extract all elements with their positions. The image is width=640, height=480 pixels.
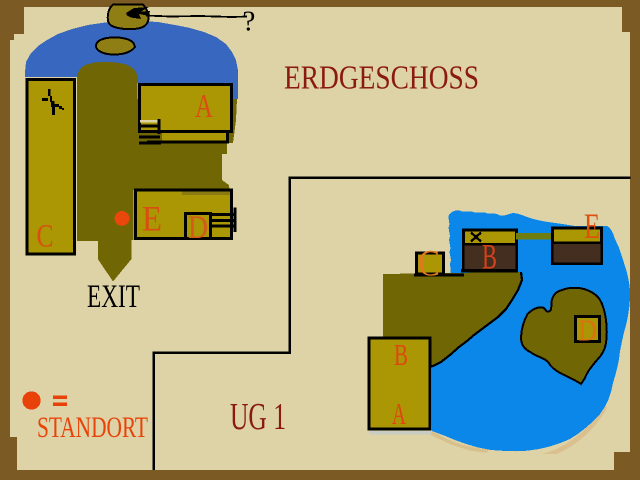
svg-text:E: E — [142, 199, 162, 239]
svg-text:E: E — [584, 206, 600, 246]
svg-text:?: ? — [243, 6, 256, 38]
svg-text:C: C — [37, 219, 54, 255]
svg-text:B: B — [482, 237, 497, 277]
svg-text:A: A — [195, 88, 213, 125]
svg-text:STANDORT: STANDORT — [37, 411, 148, 444]
svg-text:D: D — [578, 313, 597, 348]
svg-text:ERDGESCHOSS: ERDGESCHOSS — [284, 60, 479, 97]
svg-text:A: A — [392, 397, 406, 431]
svg-text:UG 1: UG 1 — [230, 396, 286, 438]
svg-text:C: C — [418, 244, 440, 285]
svg-text:D: D — [188, 210, 208, 246]
svg-text:EXIT: EXIT — [87, 279, 140, 315]
svg-text:B: B — [394, 338, 408, 372]
